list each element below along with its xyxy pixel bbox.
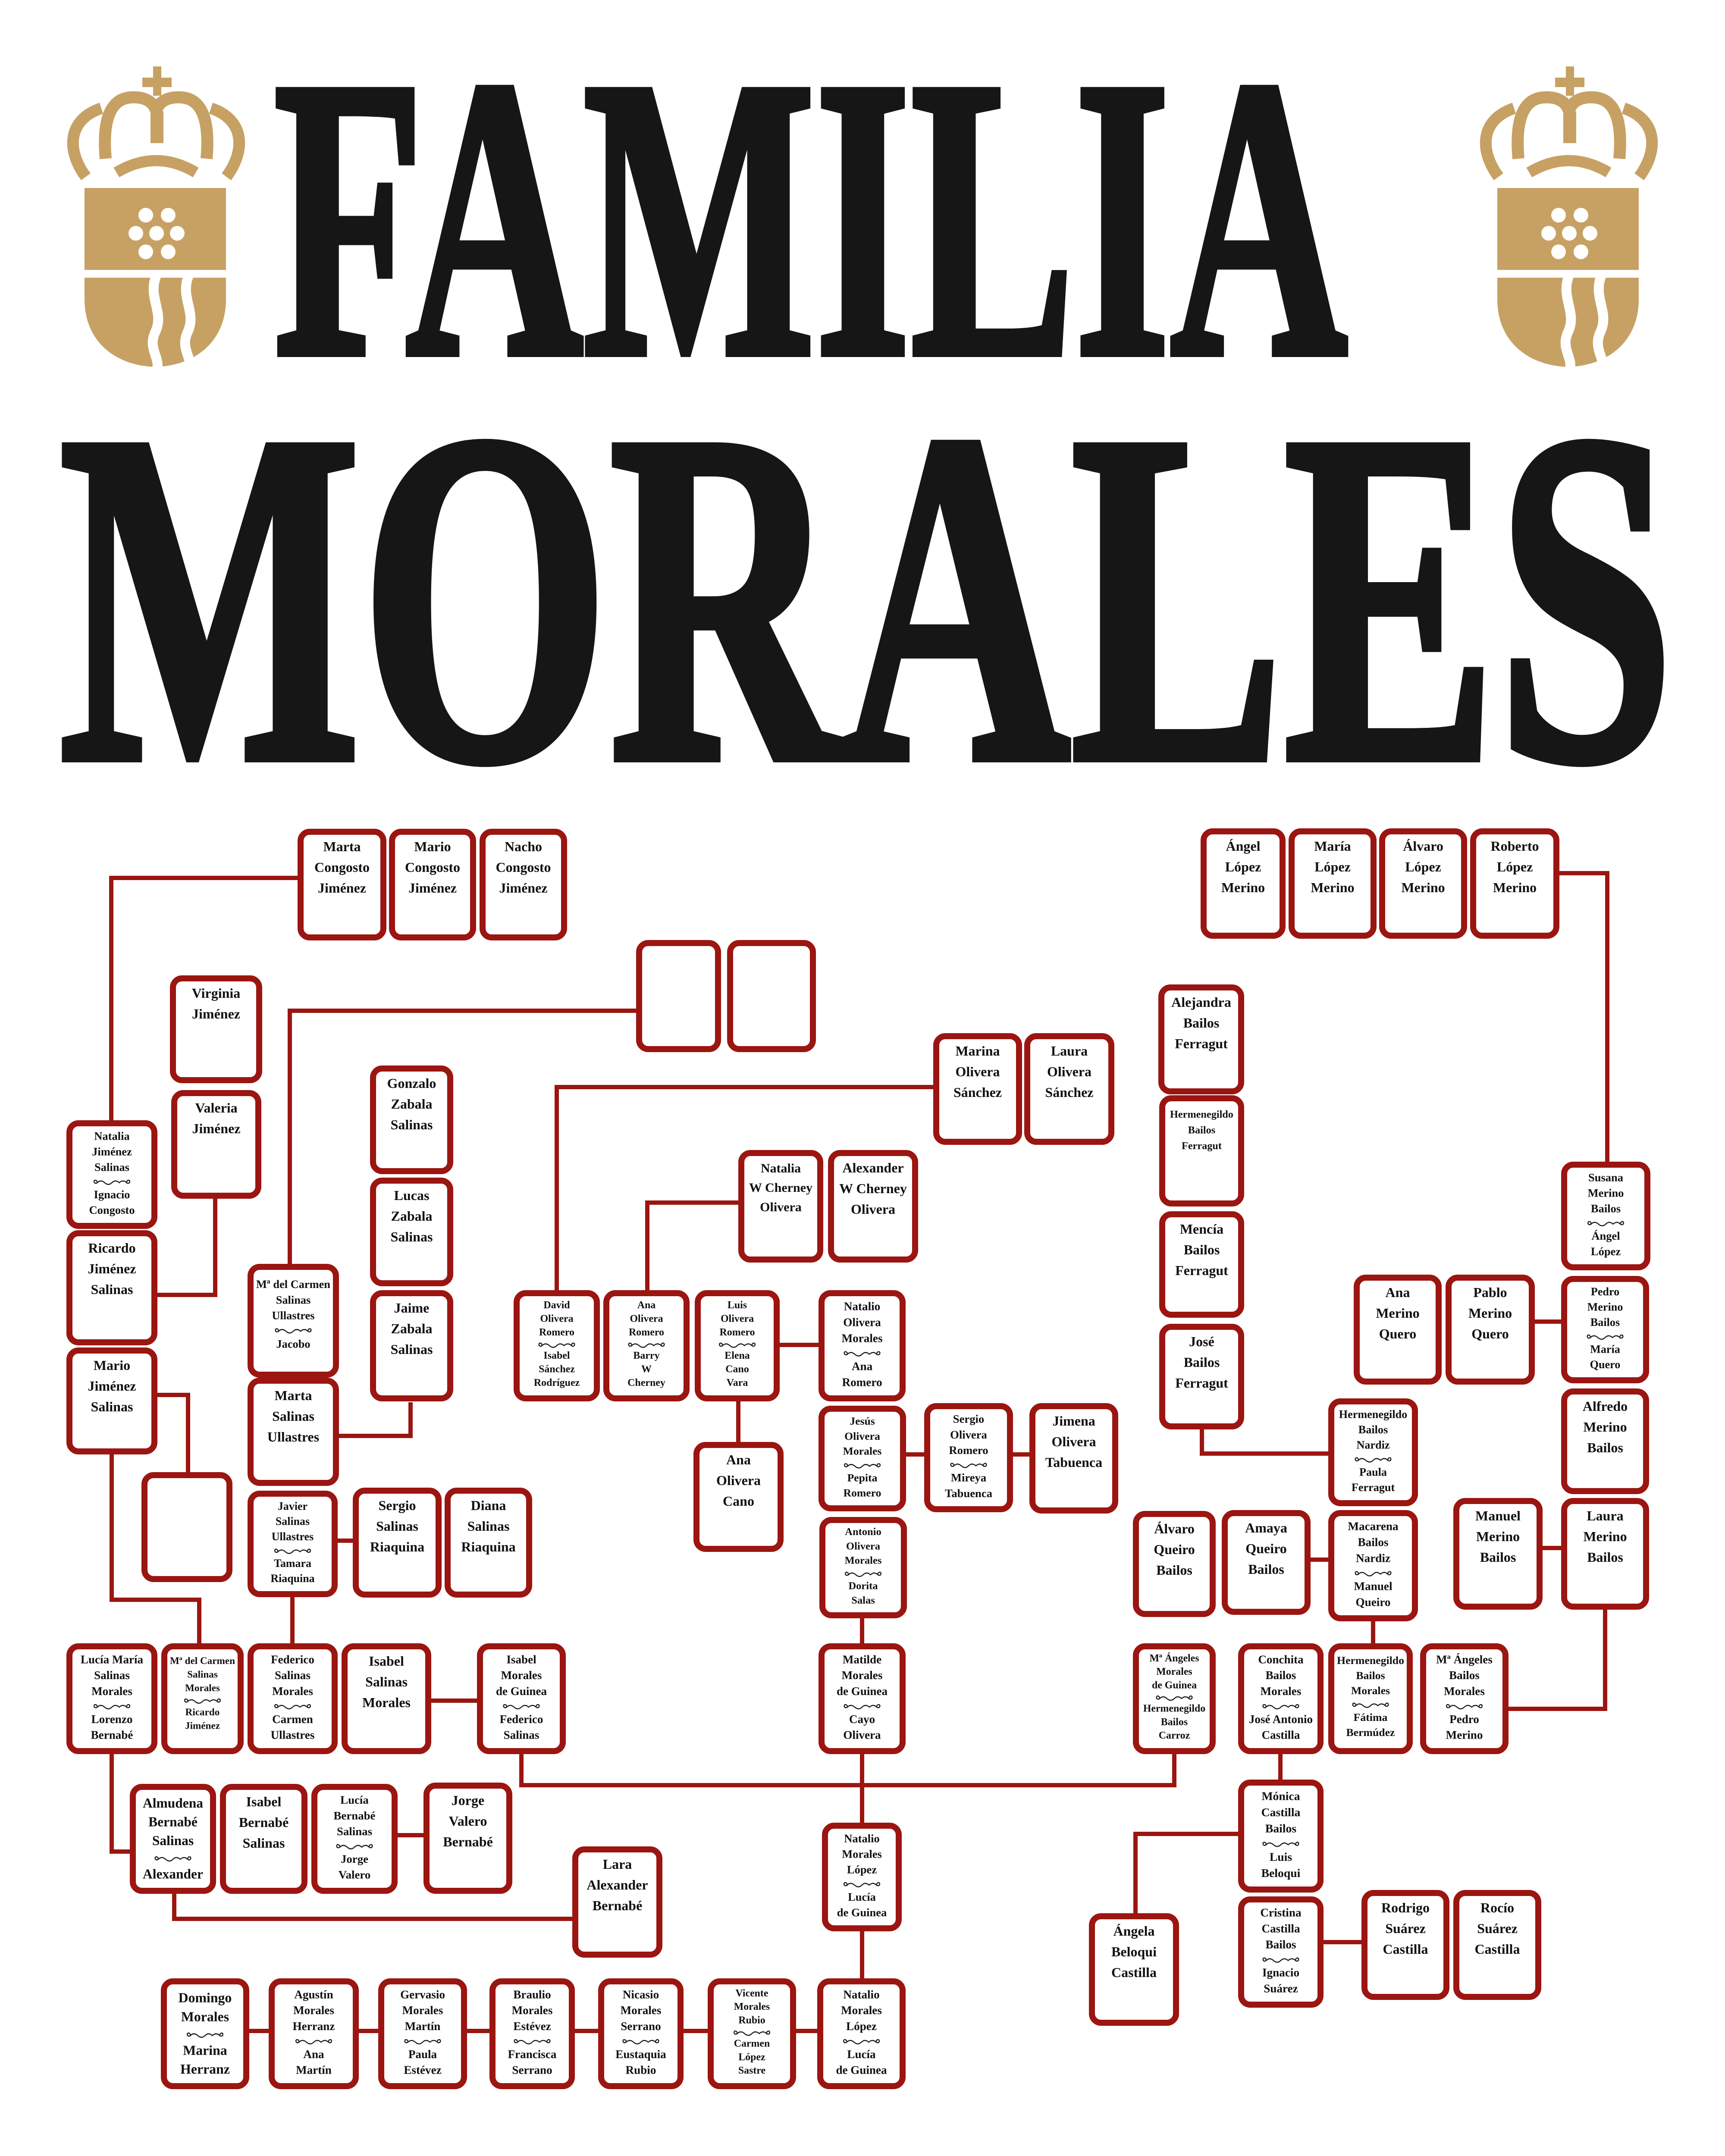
svg-text:Marina: Marina xyxy=(955,1043,1000,1059)
svg-text:Morales: Morales xyxy=(621,2004,662,2017)
svg-text:Mireya: Mireya xyxy=(951,1471,986,1484)
svg-text:Paula: Paula xyxy=(1359,1466,1387,1478)
svg-text:Mª del Carmen: Mª del Carmen xyxy=(256,1278,330,1291)
svg-text:Jiménez: Jiménez xyxy=(408,880,457,896)
svg-text:Salinas: Salinas xyxy=(152,1833,194,1848)
svg-text:Mario: Mario xyxy=(94,1357,130,1373)
svg-text:Martín: Martín xyxy=(296,2064,332,2077)
svg-text:Morales: Morales xyxy=(734,2001,770,2012)
svg-text:Olivera: Olivera xyxy=(843,1316,881,1329)
svg-text:Ullastres: Ullastres xyxy=(267,1429,319,1445)
svg-text:Salinas: Salinas xyxy=(504,1729,539,1742)
svg-text:Salinas: Salinas xyxy=(91,1399,133,1414)
svg-text:Carmen: Carmen xyxy=(272,1713,313,1726)
svg-text:Salinas: Salinas xyxy=(272,1408,314,1424)
svg-text:Cano: Cano xyxy=(725,1364,749,1375)
svg-text:Bailos: Bailos xyxy=(1183,1015,1220,1031)
svg-text:Salinas: Salinas xyxy=(276,1515,310,1528)
svg-text:Quero: Quero xyxy=(1471,1326,1509,1341)
svg-text:Bailos: Bailos xyxy=(1358,1536,1388,1549)
svg-text:de Guinea: de Guinea xyxy=(836,2064,887,2077)
svg-text:Domingo: Domingo xyxy=(179,1990,232,2006)
svg-text:Alexander: Alexander xyxy=(842,1160,903,1175)
svg-text:Salinas: Salinas xyxy=(365,1674,408,1689)
svg-text:David: David xyxy=(543,1300,570,1311)
svg-text:Natalio: Natalio xyxy=(843,1988,879,2001)
svg-text:Martín: Martín xyxy=(405,2020,441,2033)
svg-text:Riaquina: Riaquina xyxy=(270,1572,314,1585)
svg-text:Jiménez: Jiménez xyxy=(499,880,548,896)
svg-text:Dorita: Dorita xyxy=(848,1580,878,1592)
svg-text:Romero: Romero xyxy=(629,1327,664,1338)
svg-text:Bailos: Bailos xyxy=(1248,1561,1284,1577)
svg-text:Suárez: Suárez xyxy=(1385,1921,1426,1936)
svg-text:Serrano: Serrano xyxy=(621,2020,661,2033)
svg-text:Sergio: Sergio xyxy=(953,1413,984,1426)
svg-text:López: López xyxy=(847,1863,877,1876)
svg-text:Rocío: Rocío xyxy=(1480,1900,1514,1915)
svg-text:Valero: Valero xyxy=(449,1813,487,1829)
svg-text:Salinas: Salinas xyxy=(94,1160,129,1173)
svg-text:Romero: Romero xyxy=(844,1486,881,1499)
svg-text:Quero: Quero xyxy=(1379,1326,1417,1341)
svg-text:Morales: Morales xyxy=(1261,1685,1302,1698)
svg-text:Ángel: Ángel xyxy=(1226,838,1261,854)
svg-text:Morales: Morales xyxy=(1156,1666,1192,1677)
svg-text:Tabuenca: Tabuenca xyxy=(1045,1454,1102,1470)
svg-text:Morales: Morales xyxy=(842,1669,883,1682)
svg-text:Olivera: Olivera xyxy=(540,1313,573,1324)
svg-text:Luis: Luis xyxy=(1270,1850,1292,1864)
svg-text:Rubio: Rubio xyxy=(626,2064,656,2077)
svg-text:Valero: Valero xyxy=(339,1868,371,1881)
svg-text:Castilla: Castilla xyxy=(1383,1941,1428,1957)
svg-text:Morales: Morales xyxy=(512,2004,553,2017)
svg-text:Quero: Quero xyxy=(1590,1358,1621,1371)
svg-text:Romero: Romero xyxy=(949,1444,988,1457)
svg-text:Vara: Vara xyxy=(727,1377,748,1388)
svg-text:Morales: Morales xyxy=(185,1683,220,1694)
svg-text:Hermenegildo: Hermenegildo xyxy=(1339,1408,1408,1420)
svg-text:Suárez: Suárez xyxy=(1477,1921,1518,1936)
svg-text:Suárez: Suárez xyxy=(1264,1982,1298,1995)
svg-text:Rodrigo: Rodrigo xyxy=(1381,1900,1430,1915)
svg-text:Bailos: Bailos xyxy=(1265,1822,1296,1835)
svg-text:Álvaro: Álvaro xyxy=(1154,1521,1195,1536)
svg-text:de Guinea: de Guinea xyxy=(837,1906,887,1919)
svg-text:López: López xyxy=(846,2020,877,2033)
svg-text:Bernabé: Bernabé xyxy=(148,1814,198,1830)
svg-text:Roberto: Roberto xyxy=(1491,838,1539,854)
svg-text:Pedro: Pedro xyxy=(1591,1285,1619,1298)
svg-text:Merino: Merino xyxy=(1401,880,1445,895)
svg-text:Mª Ángeles: Mª Ángeles xyxy=(1436,1653,1493,1666)
svg-text:Merino: Merino xyxy=(1311,880,1354,895)
svg-text:Cano: Cano xyxy=(723,1493,754,1509)
svg-text:Gonzalo: Gonzalo xyxy=(387,1075,436,1091)
svg-text:Ana: Ana xyxy=(726,1452,751,1467)
svg-text:Conchita: Conchita xyxy=(1258,1653,1304,1666)
svg-text:Mª Ángeles: Mª Ángeles xyxy=(1149,1653,1199,1664)
svg-text:Natalia: Natalia xyxy=(761,1161,801,1175)
svg-text:Sánchez: Sánchez xyxy=(953,1084,1002,1100)
svg-text:Ricardo: Ricardo xyxy=(88,1240,135,1256)
svg-text:Castilla: Castilla xyxy=(1261,1805,1301,1819)
svg-text:Olivera: Olivera xyxy=(760,1200,802,1214)
svg-text:Jorge: Jorge xyxy=(452,1792,484,1808)
svg-text:José: José xyxy=(1189,1334,1214,1349)
svg-text:Beloqui: Beloqui xyxy=(1111,1944,1157,1959)
svg-text:Congosto: Congosto xyxy=(314,859,370,875)
svg-text:Jimena: Jimena xyxy=(1052,1413,1095,1429)
svg-text:Olivera: Olivera xyxy=(630,1313,663,1324)
svg-text:López: López xyxy=(1405,859,1441,874)
svg-text:Zabala: Zabala xyxy=(391,1208,432,1224)
svg-text:Alexander: Alexander xyxy=(143,1866,203,1881)
svg-text:Bailos: Bailos xyxy=(1449,1669,1480,1682)
svg-text:Cherney: Cherney xyxy=(627,1377,665,1388)
svg-text:Morales: Morales xyxy=(841,2004,882,2017)
svg-text:Federico: Federico xyxy=(500,1713,543,1726)
svg-text:Morales: Morales xyxy=(842,1847,882,1860)
svg-text:Isabel: Isabel xyxy=(246,1794,282,1809)
svg-text:Salinas: Salinas xyxy=(391,1229,433,1244)
svg-text:Carroz: Carroz xyxy=(1159,1730,1190,1741)
svg-text:Bernabé: Bernabé xyxy=(593,1898,643,1913)
svg-text:Merino: Merino xyxy=(1587,1300,1623,1313)
svg-text:Merino: Merino xyxy=(1446,1729,1483,1742)
svg-text:Merino: Merino xyxy=(1468,1305,1512,1321)
svg-text:Bailos: Bailos xyxy=(1356,1669,1385,1682)
svg-text:Queiro: Queiro xyxy=(1154,1542,1195,1557)
svg-text:Morales: Morales xyxy=(1444,1685,1485,1698)
svg-text:Manuel: Manuel xyxy=(1475,1508,1521,1523)
svg-text:Marina: Marina xyxy=(183,2043,227,2058)
svg-text:Olivera: Olivera xyxy=(843,1729,881,1742)
svg-text:Ferragut: Ferragut xyxy=(1182,1140,1222,1152)
svg-text:Ferragut: Ferragut xyxy=(1352,1481,1395,1494)
svg-text:Salas: Salas xyxy=(851,1595,875,1606)
svg-text:Merino: Merino xyxy=(1476,1529,1520,1544)
svg-text:María: María xyxy=(1590,1343,1620,1356)
svg-text:López: López xyxy=(1591,1245,1621,1258)
svg-text:Merino: Merino xyxy=(1588,1186,1624,1199)
svg-text:Olivera: Olivera xyxy=(844,1430,880,1442)
svg-text:Salinas: Salinas xyxy=(275,1669,310,1682)
svg-text:Ana: Ana xyxy=(303,2048,324,2061)
svg-text:Ángela: Ángela xyxy=(1113,1923,1155,1939)
svg-text:Amaya: Amaya xyxy=(1245,1520,1287,1536)
svg-text:Nicasio: Nicasio xyxy=(623,1988,659,2001)
svg-text:Manuel: Manuel xyxy=(1354,1580,1393,1593)
svg-text:Rodríguez: Rodríguez xyxy=(534,1377,580,1388)
svg-text:Sergio: Sergio xyxy=(378,1498,416,1513)
svg-text:Natalio: Natalio xyxy=(844,1300,881,1313)
svg-text:Congosto: Congosto xyxy=(89,1203,135,1216)
svg-text:Mencía: Mencía xyxy=(1180,1221,1223,1237)
svg-text:Nardiz: Nardiz xyxy=(1356,1438,1389,1451)
svg-text:Castilla: Castilla xyxy=(1262,1729,1300,1742)
svg-text:Bermúdez: Bermúdez xyxy=(1346,1726,1395,1739)
svg-text:Merino: Merino xyxy=(1583,1529,1627,1544)
svg-text:Jiménez: Jiménez xyxy=(192,1006,240,1022)
svg-text:Laura: Laura xyxy=(1587,1508,1623,1523)
svg-text:Lucía María: Lucía María xyxy=(81,1653,144,1666)
svg-text:Elena: Elena xyxy=(724,1350,750,1361)
svg-text:Salinas: Salinas xyxy=(187,1669,218,1680)
svg-text:Bernabé: Bernabé xyxy=(443,1834,493,1849)
svg-text:Olivera: Olivera xyxy=(955,1064,1000,1079)
svg-text:Castilla: Castilla xyxy=(1261,1922,1300,1935)
svg-text:Jiménez: Jiménez xyxy=(88,1378,136,1394)
svg-text:Marta: Marta xyxy=(323,839,361,854)
svg-text:Luis: Luis xyxy=(728,1300,747,1311)
svg-text:Natalio: Natalio xyxy=(844,1832,879,1845)
svg-text:Isabel: Isabel xyxy=(543,1350,570,1361)
svg-text:Riaquina: Riaquina xyxy=(370,1539,424,1554)
svg-text:Salinas: Salinas xyxy=(376,1518,418,1534)
svg-text:Pepita: Pepita xyxy=(847,1471,878,1484)
svg-text:Lucía: Lucía xyxy=(847,2048,876,2061)
svg-text:Ana: Ana xyxy=(637,1300,656,1311)
svg-text:Jacobo: Jacobo xyxy=(276,1338,310,1351)
svg-text:Tabuenca: Tabuenca xyxy=(945,1487,992,1500)
svg-text:Lucas: Lucas xyxy=(394,1188,430,1203)
svg-text:Agustín: Agustín xyxy=(294,1988,333,2001)
svg-text:Cristina: Cristina xyxy=(1260,1906,1302,1919)
svg-text:Morales: Morales xyxy=(362,1695,411,1710)
svg-text:Jiménez: Jiménez xyxy=(192,1121,241,1136)
svg-text:Mónica: Mónica xyxy=(1261,1789,1300,1802)
svg-text:Jesús: Jesús xyxy=(850,1415,875,1427)
svg-text:Bailos: Bailos xyxy=(1184,1242,1220,1257)
svg-text:Ignacio: Ignacio xyxy=(94,1188,130,1201)
svg-text:Isabel: Isabel xyxy=(506,1653,536,1666)
svg-text:Jorge: Jorge xyxy=(341,1852,368,1865)
svg-text:Olivera: Olivera xyxy=(721,1313,754,1324)
svg-text:Bailos: Bailos xyxy=(1184,1354,1220,1370)
svg-text:Ferragut: Ferragut xyxy=(1175,1375,1228,1391)
svg-text:Ullastres: Ullastres xyxy=(271,1729,315,1742)
svg-text:Castilla: Castilla xyxy=(1475,1941,1520,1957)
svg-text:Merino: Merino xyxy=(1376,1305,1419,1321)
svg-text:Tamara: Tamara xyxy=(274,1557,311,1570)
svg-text:Antonio: Antonio xyxy=(845,1526,881,1538)
svg-text:de Guinea: de Guinea xyxy=(496,1685,547,1698)
svg-text:Bailos: Bailos xyxy=(1188,1124,1215,1136)
svg-text:Castilla: Castilla xyxy=(1111,1965,1157,1980)
svg-text:Zabala: Zabala xyxy=(391,1096,432,1112)
svg-text:Braulio: Braulio xyxy=(513,1988,551,2001)
svg-text:Morales: Morales xyxy=(402,2004,443,2017)
svg-text:Bailos: Bailos xyxy=(1587,1549,1623,1565)
svg-text:Pablo: Pablo xyxy=(1473,1285,1507,1300)
svg-text:Bernabé: Bernabé xyxy=(239,1814,289,1830)
svg-text:Salinas: Salinas xyxy=(391,1117,433,1132)
svg-text:Morales: Morales xyxy=(841,1332,882,1344)
svg-text:Hermenegildo: Hermenegildo xyxy=(1143,1703,1205,1714)
svg-text:Ignacio: Ignacio xyxy=(1262,1966,1299,1979)
svg-text:Morales: Morales xyxy=(845,1555,882,1567)
svg-text:María: María xyxy=(1314,838,1351,854)
svg-text:Lucía: Lucía xyxy=(848,1890,876,1903)
svg-text:Estévez: Estévez xyxy=(404,2064,441,2077)
svg-text:Merino: Merino xyxy=(1221,880,1265,895)
svg-text:Nacho: Nacho xyxy=(505,839,542,854)
svg-text:Salinas: Salinas xyxy=(467,1518,510,1534)
svg-text:Jiménez: Jiménez xyxy=(185,1720,220,1732)
svg-text:Bailos: Bailos xyxy=(1590,1316,1620,1329)
svg-text:Ullastres: Ullastres xyxy=(272,1530,314,1543)
svg-text:Merino: Merino xyxy=(1583,1419,1627,1435)
svg-text:Morales: Morales xyxy=(293,2004,334,2017)
svg-text:Olivera: Olivera xyxy=(1047,1064,1091,1079)
svg-text:Susana: Susana xyxy=(1588,1171,1623,1184)
svg-text:Javier: Javier xyxy=(278,1500,307,1512)
svg-text:José Antonio: José Antonio xyxy=(1249,1713,1313,1726)
svg-text:Congosto: Congosto xyxy=(496,859,551,875)
svg-text:Virginia: Virginia xyxy=(192,985,241,1001)
svg-text:de Guinea: de Guinea xyxy=(1152,1680,1197,1691)
svg-text:Jiménez: Jiménez xyxy=(92,1145,132,1158)
svg-text:Bailos: Bailos xyxy=(1266,1669,1296,1682)
svg-text:Isabel: Isabel xyxy=(369,1653,404,1669)
svg-text:Morales: Morales xyxy=(91,1685,132,1698)
svg-text:Almudena: Almudena xyxy=(143,1796,203,1811)
svg-text:Marta: Marta xyxy=(274,1388,312,1403)
svg-text:Morales: Morales xyxy=(272,1685,313,1698)
svg-text:Jaime: Jaime xyxy=(394,1300,430,1316)
svg-text:Ullastres: Ullastres xyxy=(272,1310,314,1322)
svg-text:Olivera: Olivera xyxy=(846,1540,880,1552)
svg-text:Laura: Laura xyxy=(1051,1043,1088,1059)
svg-text:Bailos: Bailos xyxy=(1161,1717,1188,1728)
svg-text:Merino: Merino xyxy=(1493,880,1537,895)
svg-text:Bailos: Bailos xyxy=(1265,1938,1296,1951)
svg-text:Beloqui: Beloqui xyxy=(1261,1866,1301,1880)
svg-text:Bailos: Bailos xyxy=(1358,1423,1388,1436)
svg-text:Salinas: Salinas xyxy=(94,1669,130,1682)
svg-text:Federico: Federico xyxy=(271,1653,314,1666)
svg-text:Salinas: Salinas xyxy=(243,1835,285,1851)
svg-text:Salinas: Salinas xyxy=(391,1341,433,1357)
svg-text:Matilde: Matilde xyxy=(843,1653,881,1666)
svg-text:Lucía: Lucía xyxy=(340,1793,369,1806)
svg-text:Bailos: Bailos xyxy=(1591,1202,1621,1215)
svg-text:MORALES: MORALES xyxy=(60,334,1675,861)
svg-text:Mario: Mario xyxy=(414,839,451,854)
svg-text:Cayo: Cayo xyxy=(849,1713,875,1726)
svg-text:Natalia: Natalia xyxy=(94,1129,129,1142)
svg-text:Jiménez: Jiménez xyxy=(318,880,366,896)
svg-text:Morales: Morales xyxy=(181,2009,229,2024)
svg-text:W: W xyxy=(641,1364,652,1375)
svg-text:Bernabé: Bernabé xyxy=(334,1809,376,1822)
svg-text:Olivera: Olivera xyxy=(851,1201,895,1217)
svg-text:Salinas: Salinas xyxy=(91,1282,133,1297)
svg-text:López: López xyxy=(1225,859,1261,874)
svg-text:Congosto: Congosto xyxy=(405,859,460,875)
svg-text:Carmen: Carmen xyxy=(734,2038,770,2049)
svg-text:Bailos: Bailos xyxy=(1156,1562,1192,1578)
svg-text:Salinas: Salinas xyxy=(337,1825,372,1838)
svg-text:Bernabé: Bernabé xyxy=(91,1729,133,1742)
svg-text:Jiménez: Jiménez xyxy=(88,1261,136,1276)
svg-text:Hermenegildo: Hermenegildo xyxy=(1170,1109,1233,1120)
svg-text:Ana: Ana xyxy=(1386,1285,1410,1300)
svg-text:Lorenzo: Lorenzo xyxy=(91,1713,133,1726)
svg-text:Macarena: Macarena xyxy=(1348,1520,1399,1533)
svg-text:Barry: Barry xyxy=(633,1350,659,1361)
svg-text:Sánchez: Sánchez xyxy=(539,1364,575,1375)
svg-text:Ferragut: Ferragut xyxy=(1175,1036,1228,1051)
svg-text:Morales: Morales xyxy=(843,1445,882,1457)
svg-text:Riaquina: Riaquina xyxy=(461,1539,515,1554)
svg-text:Romero: Romero xyxy=(720,1327,755,1338)
svg-text:Olivera: Olivera xyxy=(1051,1434,1096,1449)
svg-text:Olivera: Olivera xyxy=(950,1428,987,1441)
svg-text:Francisca: Francisca xyxy=(508,2048,557,2061)
svg-text:Gervasio: Gervasio xyxy=(400,1988,445,2001)
svg-text:Alfredo: Alfredo xyxy=(1583,1398,1628,1414)
svg-text:Morales: Morales xyxy=(1351,1684,1390,1697)
svg-text:Bailos: Bailos xyxy=(1480,1549,1516,1565)
svg-text:Serrano: Serrano xyxy=(512,2064,552,2077)
svg-text:Sastre: Sastre xyxy=(738,2065,765,2076)
svg-text:Queiro: Queiro xyxy=(1355,1595,1390,1608)
svg-text:Herranz: Herranz xyxy=(293,2020,335,2033)
svg-text:Olivera: Olivera xyxy=(716,1473,761,1488)
svg-text:de Guinea: de Guinea xyxy=(837,1685,888,1698)
svg-text:Morales: Morales xyxy=(501,1669,542,1682)
svg-text:Pedro: Pedro xyxy=(1449,1713,1479,1726)
svg-text:Ángel: Ángel xyxy=(1591,1229,1620,1242)
svg-text:Diana: Diana xyxy=(471,1498,506,1513)
svg-text:W Cherney: W Cherney xyxy=(839,1181,907,1196)
svg-text:Romero: Romero xyxy=(539,1327,574,1338)
svg-text:López: López xyxy=(1314,859,1351,874)
svg-text:Paula: Paula xyxy=(408,2048,437,2061)
svg-text:Ana: Ana xyxy=(852,1360,873,1373)
svg-text:Zabala: Zabala xyxy=(391,1321,432,1336)
svg-text:Álvaro: Álvaro xyxy=(1403,838,1443,854)
svg-text:Ferragut: Ferragut xyxy=(1175,1263,1228,1278)
svg-text:Fátima: Fátima xyxy=(1354,1711,1388,1724)
svg-text:Herranz: Herranz xyxy=(180,2062,230,2077)
svg-text:Queiro: Queiro xyxy=(1245,1541,1286,1556)
svg-text:Ricardo: Ricardo xyxy=(185,1707,220,1718)
svg-text:Valeria: Valeria xyxy=(195,1100,237,1116)
svg-text:López: López xyxy=(1497,859,1533,874)
svg-text:Alexander: Alexander xyxy=(586,1877,648,1893)
svg-text:Sánchez: Sánchez xyxy=(1045,1084,1094,1100)
svg-text:Vicente: Vicente xyxy=(736,1988,768,1999)
svg-text:Romero: Romero xyxy=(842,1376,882,1388)
svg-text:Mª del Carmen: Mª del Carmen xyxy=(170,1655,235,1667)
svg-text:Lara: Lara xyxy=(603,1856,632,1872)
svg-text:Alejandra: Alejandra xyxy=(1171,994,1231,1010)
svg-text:Eustaquia: Eustaquia xyxy=(615,2048,666,2061)
svg-text:Hermenegildo: Hermenegildo xyxy=(1337,1654,1404,1667)
svg-text:Salinas: Salinas xyxy=(276,1294,311,1306)
svg-text:López: López xyxy=(738,2052,765,2063)
svg-text:Nardiz: Nardiz xyxy=(1356,1551,1390,1564)
svg-text:Estévez: Estévez xyxy=(513,2020,551,2033)
svg-text:Rubio: Rubio xyxy=(738,2015,765,2026)
svg-text:Bailos: Bailos xyxy=(1587,1440,1623,1455)
svg-text:W Cherney: W Cherney xyxy=(749,1181,812,1195)
